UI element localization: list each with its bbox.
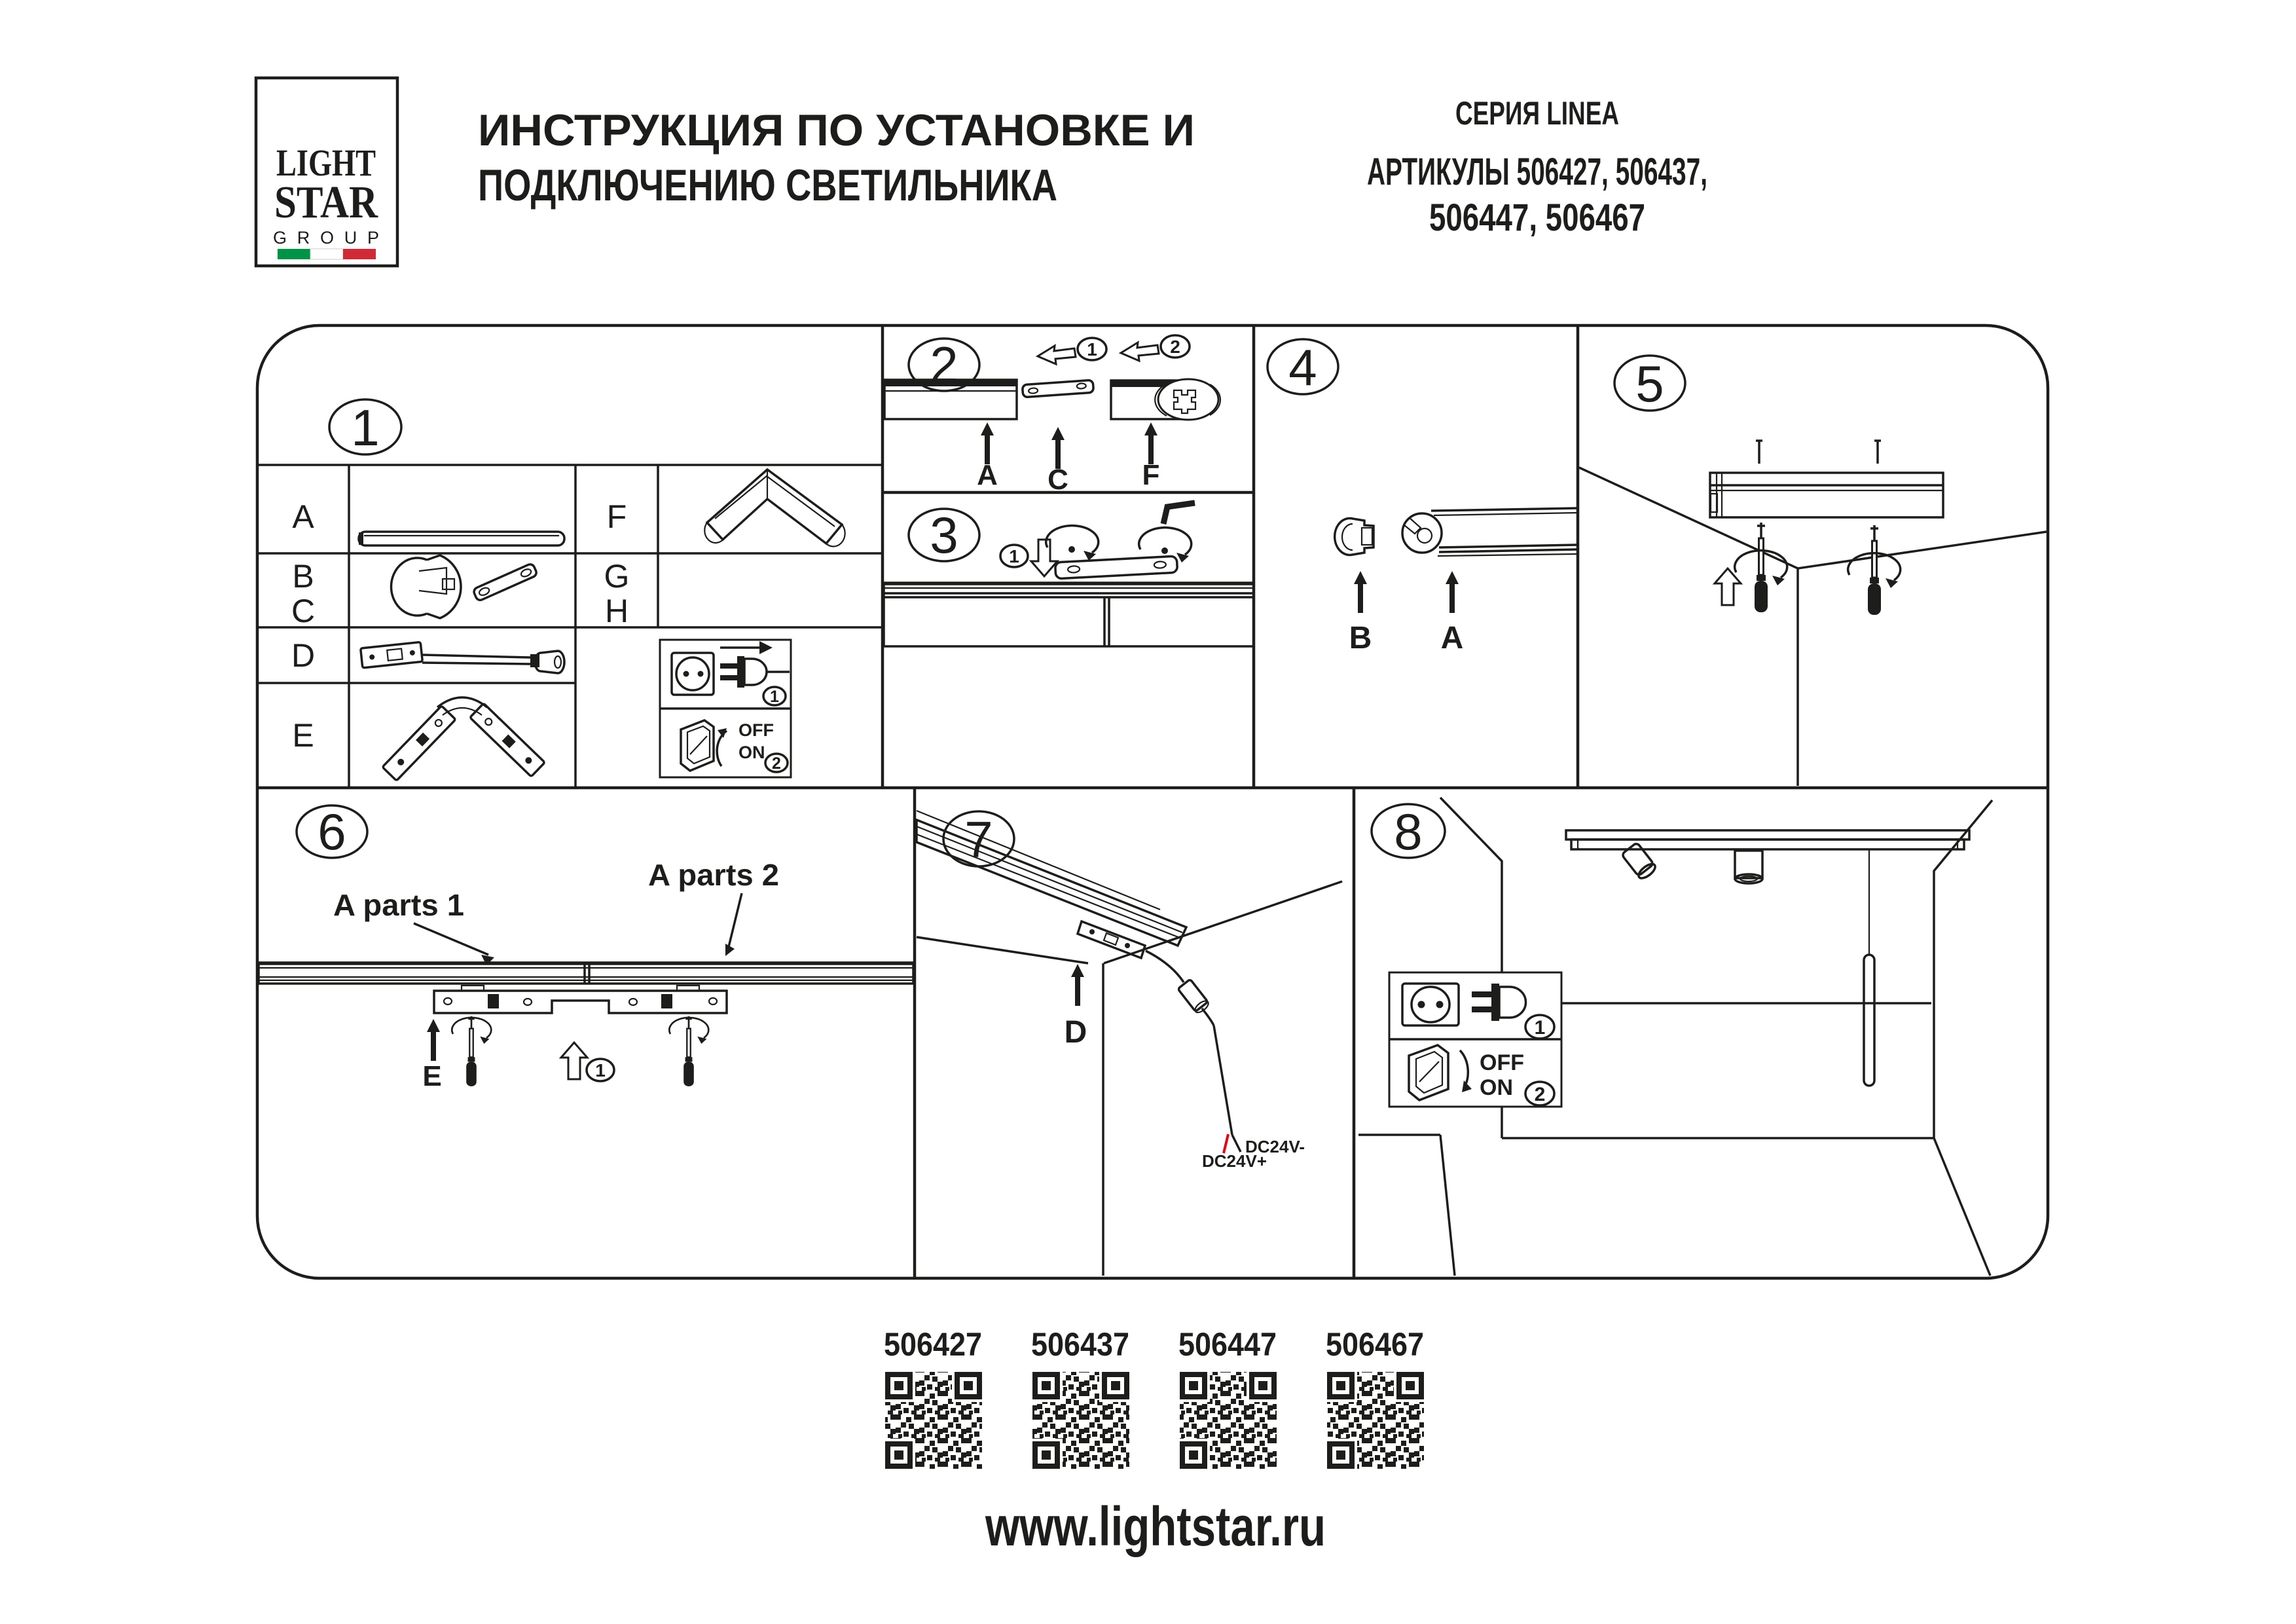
ceiling-edge-line [917,811,1160,910]
screwdriver-icon [466,1016,477,1086]
title-line-1: ИНСТРУКЦИЯ ПО УСТАНОВКЕ И [478,105,1195,155]
corner-connector-part-drawing [382,697,545,781]
pendant-fixture-drawing [1864,849,1874,1086]
part-label-f: F [607,498,627,535]
allen-key-icon [1163,503,1195,524]
badge-2: 2 [1170,337,1180,357]
panel-step-1: 1 A B C D E F G H [257,399,883,788]
cylinder-fixture-drawing [1735,851,1762,883]
panel-step-4: 4 B A [1267,339,1578,655]
power-feed-part-drawing [361,642,564,673]
step-8-number: 8 [1394,803,1422,860]
screwdriver-icon [1755,523,1768,612]
screwdriver-icon [683,1016,694,1086]
italian-flag-icon [278,249,376,259]
arrow-label-d: D [1065,1015,1087,1050]
arrow-label-f: F [1142,459,1160,491]
end-cap-b-drawing [1335,519,1374,555]
joined-track-drawing [884,583,1254,646]
logo-group: GROUP [273,228,379,248]
qr-label: 506437 [1031,1326,1129,1363]
switch-off-label: OFF [1480,1050,1524,1075]
rotate-arrow-icon [1046,526,1099,561]
screwdriver-icon [1868,525,1881,615]
switch-on-label: ON [738,743,765,762]
qr-label: 506447 [1178,1326,1277,1363]
joint-plate-part-drawing [473,563,538,602]
arrow-label-a: A [1441,621,1464,655]
step-4-number: 4 [1288,339,1317,396]
badge-1: 1 [770,688,779,706]
qr-block-506447: 506447 [1178,1326,1277,1469]
arrow-label-a: A [977,459,998,491]
screw-icon [1756,441,1762,464]
up-arrow-icon [981,422,994,464]
dc-plus-label: DC24V+ [1202,1151,1267,1171]
series-title: СЕРИЯ LINEA [1455,95,1619,132]
badge-2: 2 [1535,1084,1546,1105]
qr-section: 506427 506437 506447 506467 [884,1326,1424,1469]
part-label-h: H [605,593,629,629]
badge-1: 1 [1087,339,1097,360]
arrow-label-e: E [422,1060,441,1092]
power-socket-step-box: 1 OFF ON 2 [660,640,791,777]
up-arrow-icon [1051,427,1065,469]
arrow-label-c: C [1048,464,1068,496]
step-3-number: 3 [930,506,958,564]
up-hollow-arrow-icon [561,1043,587,1079]
panel-step-2: 2 1 2 A C F [884,335,1220,496]
up-arrow-icon [1446,571,1459,613]
black-wire [1232,1135,1241,1152]
up-hollow-arrow-icon [1715,568,1741,605]
power-socket-step-box: 1 OFF ON 2 [1389,972,1561,1107]
part-label-c: C [291,593,315,629]
qr-block-506437: 506437 [1031,1326,1129,1469]
plate-c-drawing [1022,380,1093,397]
instruction-sheet: LIGHT STAR GROUP ИНСТРУКЦИЯ ПО УСТАНОВКЕ… [0,0,2296,1624]
qr-label: 506467 [1326,1326,1424,1363]
part-label-e: E [292,717,314,754]
part-label-a: A [292,498,314,535]
red-wire [1224,1134,1228,1153]
linear-connector-e-drawing [434,986,727,1013]
panel-step-6: 6 A parts 1 A parts 2 E [259,803,913,1092]
part-label-d: D [291,637,315,674]
badge-1: 1 [1009,546,1019,566]
panel-step-5: 5 [1579,355,2047,786]
logo-star: STAR [274,177,378,228]
ceiling-track-drawing [917,820,1186,946]
label-a-parts-1: A parts 1 [333,888,464,922]
profile-a-drawing [1402,508,1578,556]
step-6-number: 6 [318,803,346,860]
ceiling-corner-lines [1579,468,2047,786]
panel-step-3: 3 1 [884,503,1254,646]
spot-fixture-drawing [1622,842,1658,881]
panel-step-7: 7 D DC24V- DC24V+ [917,811,1342,1276]
badge-1: 1 [1535,1017,1546,1039]
rail-a-drawing [884,380,1017,419]
badge-2: 2 [772,754,781,773]
articles-line-1: АРТИКУЛЫ 506427, 506437, [1367,151,1707,193]
articles-line-2: 506447, 506467 [1429,196,1645,239]
end-cap-part-drawing [391,555,461,618]
mounted-profile-drawing [1710,473,1943,517]
joined-track-drawing [259,963,913,984]
arrow-label-b: B [1349,621,1372,655]
part-label-b: B [292,558,314,595]
qr-block-506427: 506427 [884,1326,982,1469]
logo: LIGHT STAR GROUP [256,78,397,266]
joint-plate-drawing [1055,556,1177,579]
label-a-parts-2: A parts 2 [648,858,779,892]
part-label-g: G [604,558,630,595]
title-line-2: ПОДКЛЮЧЕНИЮ СВЕТИЛЬНИКА [478,160,1057,210]
page-title: ИНСТРУКЦИЯ ПО УСТАНОВКЕ И ПОДКЛЮЧЕНИЮ СВ… [478,105,1195,210]
panel-step-8: 8 [1358,798,1992,1276]
down-arrow-icon [1031,540,1057,576]
switch-on-label: ON [1480,1075,1513,1100]
qr-label: 506427 [884,1326,982,1363]
screw-icon [1874,441,1881,464]
track-profile-part-drawing [359,532,564,545]
power-cable-drawing [1146,951,1241,1153]
badge-1: 1 [595,1060,606,1080]
rail-f-drawing [1111,379,1220,420]
ceiling-track-drawing [1566,830,1969,849]
qr-block-506467: 506467 [1326,1326,1424,1469]
slide-arrow-icon [1038,346,1076,364]
up-arrow-icon [1071,964,1084,1006]
up-arrow-icon [427,1019,440,1061]
switch-off-label: OFF [738,720,774,740]
up-arrow-icon [1354,571,1367,613]
corner-profile-part-drawing [704,470,845,546]
series-block: СЕРИЯ LINEA АРТИКУЛЫ 506427, 506437, 506… [1367,95,1707,239]
step-1-number: 1 [351,399,379,456]
footer-url: www.lightstar.ru [985,1496,1326,1557]
step-5-number: 5 [1635,355,1664,413]
slide-arrow-icon [1121,342,1159,361]
up-arrow-icon [1144,422,1157,464]
